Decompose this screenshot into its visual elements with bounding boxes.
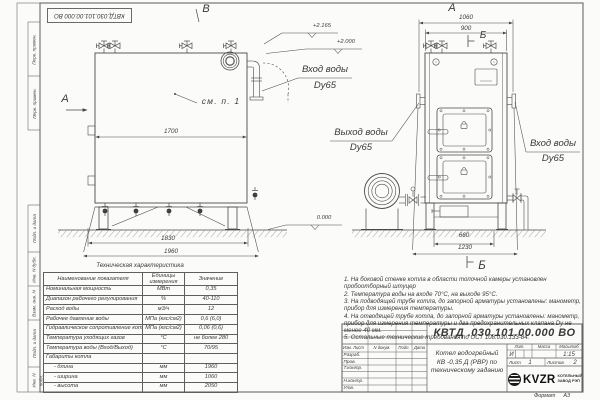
spec-cell: Диапазон рабочего регулирования	[44, 295, 143, 305]
dim-1700: 1700	[153, 129, 189, 135]
upper-door	[428, 108, 492, 152]
spec-cell: Расход воды	[44, 305, 143, 315]
spec-cell: м3/ч	[143, 305, 185, 315]
dim-1830: 1830	[150, 236, 186, 242]
spec-row: Гидравлическое сопротивление котлаМПа (к…	[44, 324, 238, 334]
spec-cell: 1960	[185, 363, 238, 373]
spec-cell: 40-110	[185, 295, 238, 305]
product-title-line3: техническому заданию	[428, 368, 506, 375]
section-label-a-front: А	[57, 94, 73, 105]
scale-value: 1:15	[556, 352, 582, 358]
lit-value: И	[507, 352, 516, 358]
water-flanges	[417, 94, 516, 108]
section-label-b-top: Б	[476, 31, 490, 41]
spec-header-row: Наименование показателя Единицы измерени…	[44, 273, 238, 286]
row-label-nkontr: Н.контр.	[344, 379, 364, 384]
company-logo: KVZR КОТЕЛЬНЫЙ ЗАВОД РЭП	[508, 368, 581, 392]
row-label-prov: Пров.	[344, 360, 356, 365]
spec-cell: 0,35	[185, 286, 238, 296]
spec-header-cell: Единицы измерения	[143, 273, 185, 286]
spec-row: Диапазон рабочего регулирования%40-110	[44, 295, 238, 305]
spec-row: Номинальная мощностьМВт0,35	[44, 286, 238, 296]
spec-cell: мм	[143, 373, 185, 383]
spec-cell: °С	[143, 334, 185, 344]
dim-1060: 1060	[448, 15, 484, 21]
col-header-izm: Изм. Лист	[343, 346, 367, 350]
lit-header: Лит.	[507, 345, 532, 349]
spec-cell: Габариты котла	[44, 353, 143, 363]
top-stamp: КВТД.030.101.00.000 ВО	[47, 8, 132, 23]
note-line: 2. Температура воды на входе 70°С, на вы…	[344, 291, 581, 298]
spec-row: Рабочее давление водыМПа (кгс/см2)0,6 (6…	[44, 315, 238, 325]
water-inlet-label-top: Вход воды	[296, 65, 354, 75]
sheets-label: Листов	[547, 361, 564, 366]
col-header-sign: Подп.	[397, 346, 412, 350]
spec-cell: 0,6 (6,0)	[185, 315, 238, 325]
dim-1960: 1960	[153, 249, 189, 255]
spec-cell: Температура уходящих газов	[44, 334, 143, 344]
margin-label-4: Инв. N дубл.	[31, 252, 38, 286]
spec-cell: мм	[143, 382, 185, 392]
elevation-2000: +2.000	[330, 40, 362, 46]
spec-cell: Температура воды (Вход/Выход)	[44, 344, 143, 354]
section-label-a-side: А	[444, 3, 460, 14]
sheets-value: 2	[571, 360, 579, 366]
water-outlet-label: Выход воды	[328, 128, 394, 138]
spec-row: Температура уходящих газов°Сне более 280	[44, 334, 238, 344]
spec-cell: Гидравлическое сопротивление котла	[44, 324, 143, 334]
spec-cell: 70/95	[185, 344, 238, 354]
spec-cell: 0,06 (0,6)	[185, 324, 238, 334]
format-footer: ФорматА3	[534, 394, 570, 399]
spec-cell: %	[143, 295, 185, 305]
spec-header-cell: Значение	[185, 273, 238, 286]
elevation-2165: +2.165	[306, 24, 338, 30]
section-label-b-bottom: Б	[474, 261, 490, 273]
margin-label-6: Подп. и дата	[31, 320, 38, 367]
spec-cell: МПа (кгс/см2)	[143, 315, 185, 325]
dim-900: 900	[448, 26, 484, 32]
spec-cell: не более 280	[185, 334, 238, 344]
front-view-drawing	[58, 41, 289, 237]
spec-row: - длинамм1960	[44, 363, 238, 373]
logo-subtitle-2: ЗАВОД РЭП	[558, 380, 583, 384]
product-title-line2: КВ -0,35 Д (РВР) по	[428, 360, 506, 367]
logo-emblem-icon	[508, 373, 521, 386]
spec-cell	[185, 353, 238, 363]
spec-cell: 1060	[185, 373, 238, 383]
spec-cell: 12	[185, 305, 238, 315]
side-view-drawing	[352, 41, 546, 237]
margin-label-1: Перв. примен.	[31, 23, 38, 75]
water-outlet-dn: Dy65	[328, 143, 394, 153]
spec-row: Температура воды (Вход/Выход)°С70/95	[44, 344, 238, 354]
top-stamp-text: КВТД.030.101.00.000 ВО	[54, 12, 125, 19]
spec-cell: МПа (кгс/см2)	[143, 324, 185, 334]
side-valve	[507, 189, 528, 230]
margin-label-5: Взам. инв. N	[31, 286, 38, 320]
spec-cell: МВт	[143, 286, 185, 296]
spec-row: Расход водым3/ч12	[44, 305, 238, 315]
spec-cell: - длина	[44, 363, 143, 373]
see-note-label: см. п. 1	[197, 97, 245, 106]
spec-row: - ширинамм1060	[44, 373, 238, 383]
row-label-tkontr: Т.контр.	[344, 366, 363, 371]
spec-table: Наименование показателя Единицы измерени…	[43, 272, 238, 393]
water-inlet-dn-top: Dy65	[296, 81, 354, 91]
drawing-sheet: КВТД.030.101.00.000 ВО Перв. примен. Пер…	[0, 0, 600, 400]
doc-number: КВТД .030.101.00.000 ВО	[428, 327, 581, 339]
spec-cell: мм	[143, 363, 185, 373]
margin-label-3: Подп. и дата	[31, 205, 38, 252]
elevation-0000: 0.000	[308, 216, 340, 222]
col-header-doc: N докум.	[369, 346, 395, 350]
flange-circle-icon	[221, 52, 239, 70]
spec-cell	[143, 353, 185, 363]
col-header-date: Дата	[413, 346, 427, 350]
spec-cell: - ширина	[44, 373, 143, 383]
water-inlet-label-side: Вход воды	[523, 139, 583, 149]
water-inlet-dn-side: Dy65	[523, 154, 583, 164]
logo-text: KVZR	[523, 374, 556, 386]
spec-cell: Рабочее давление воды	[44, 315, 143, 325]
product-title-line1: Котел водогрейный	[428, 351, 506, 358]
spec-cell: 2050	[185, 382, 238, 392]
spec-table-title: Техническая характеристика	[43, 263, 237, 269]
spec-row: - высотамм2050	[44, 382, 238, 392]
row-label-razrab: Разраб.	[344, 353, 361, 358]
fan-icon	[361, 174, 403, 230]
spec-cell: - высота	[44, 382, 143, 392]
scale-header: Масштаб	[556, 345, 582, 349]
sheet-value: 1	[526, 360, 534, 366]
spec-row: Габариты котла	[44, 353, 238, 363]
fan-duct-valve	[399, 187, 426, 206]
mass-header: Масса	[532, 345, 556, 349]
sheet-label: Лист	[509, 361, 521, 366]
dim-1230: 1230	[447, 245, 483, 251]
note-line: 1. На боковой стенке котла в области топ…	[344, 276, 581, 290]
spec-cell: Номинальная мощность	[44, 286, 143, 296]
note-line: 3. На подводящей трубе котла, до запорно…	[344, 298, 581, 312]
format-label: Формат	[534, 393, 555, 399]
dim-660: 660	[446, 233, 482, 239]
lower-door	[428, 155, 492, 199]
margin-label-7: Инв. N подл.	[31, 367, 38, 393]
spec-cell: °С	[143, 344, 185, 354]
inlet-elbow-pipe	[247, 61, 289, 103]
spec-header-cell: Наименование показателя	[44, 273, 143, 286]
view-label-v: В	[199, 4, 213, 15]
row-label-utv: Утв.	[344, 386, 355, 391]
margin-label-2: Перв. примен.	[31, 77, 38, 130]
format-value: А3	[563, 393, 570, 399]
